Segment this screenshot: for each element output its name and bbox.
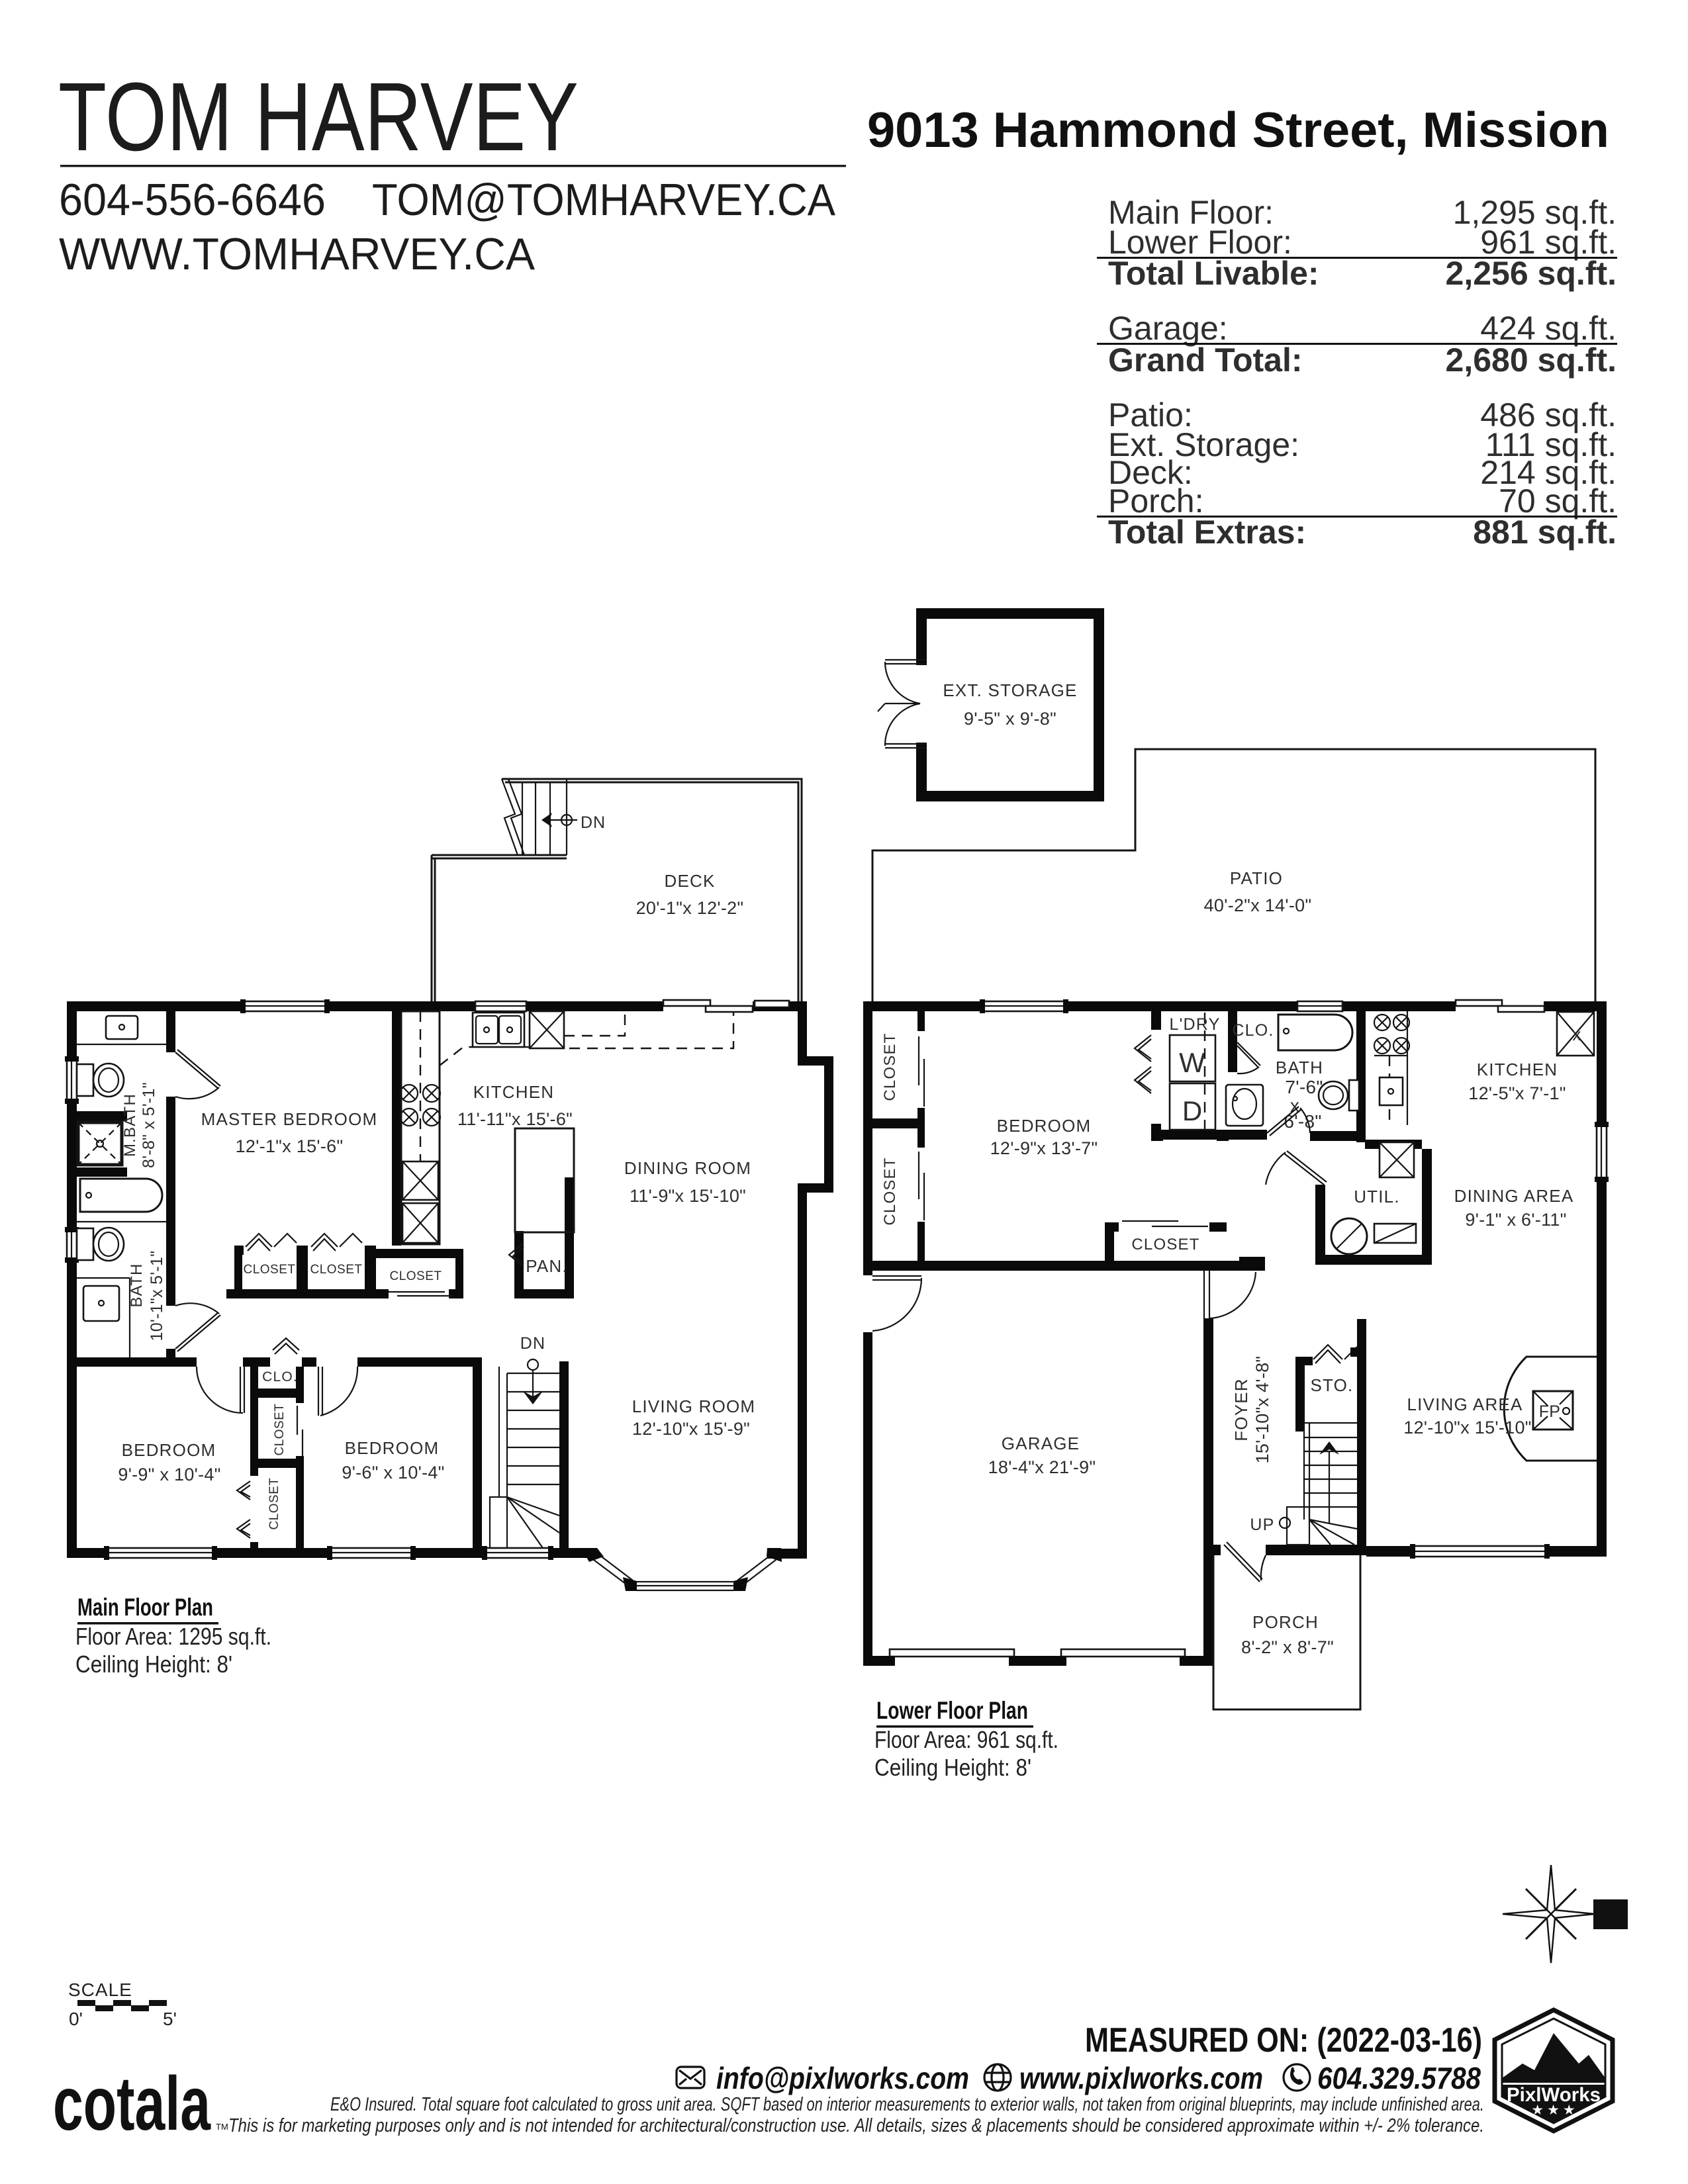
svg-text:TM: TM bbox=[216, 2122, 228, 2132]
svg-text:UTIL.: UTIL. bbox=[1354, 1187, 1400, 1206]
svg-text:CLO.: CLO. bbox=[262, 1369, 298, 1385]
svg-text:7'-6": 7'-6" bbox=[1285, 1077, 1323, 1097]
svg-text:GARAGE: GARAGE bbox=[1002, 1433, 1080, 1453]
svg-text:E&O Insured. Total square foo: E&O Insured. Total square foot calculate… bbox=[330, 2094, 1484, 2115]
svg-text:604.329.5788: 604.329.5788 bbox=[1317, 2061, 1481, 2095]
svg-text:x: x bbox=[1572, 1024, 1581, 1044]
svg-text:604-556-6646: 604-556-6646 bbox=[59, 175, 326, 225]
svg-text:TOM HARVEY: TOM HARVEY bbox=[58, 63, 579, 171]
svg-text:DN: DN bbox=[581, 813, 606, 832]
svg-text:0': 0' bbox=[69, 2009, 83, 2029]
svg-text:8'-8" x 5'-1": 8'-8" x 5'-1" bbox=[140, 1082, 158, 1168]
svg-text:PAN.: PAN. bbox=[526, 1256, 568, 1276]
svg-text:KITCHEN: KITCHEN bbox=[473, 1082, 555, 1102]
svg-text:CLOSET: CLOSET bbox=[1131, 1236, 1199, 1253]
svg-text:MASTER BEDROOM: MASTER BEDROOM bbox=[201, 1109, 378, 1129]
svg-text:BEDROOM: BEDROOM bbox=[345, 1438, 440, 1458]
svg-text:9'-5" x 9'-8": 9'-5" x 9'-8" bbox=[964, 709, 1056, 729]
svg-text:2,256 sq.ft.: 2,256 sq.ft. bbox=[1446, 255, 1617, 292]
svg-text:Main Floor Plan: Main Floor Plan bbox=[77, 1594, 213, 1621]
svg-text:5': 5' bbox=[163, 2009, 177, 2029]
svg-text:FP: FP bbox=[1539, 1402, 1561, 1421]
svg-text:8'-2" x 8'-7": 8'-2" x 8'-7" bbox=[1241, 1637, 1334, 1657]
svg-text:CLO.: CLO. bbox=[1232, 1021, 1274, 1040]
svg-text:DECK: DECK bbox=[664, 871, 715, 891]
svg-text:BATH: BATH bbox=[128, 1263, 146, 1307]
svg-text:DN: DN bbox=[520, 1334, 546, 1353]
svg-text:DINING AREA: DINING AREA bbox=[1454, 1186, 1574, 1206]
svg-text:18'-4"x 21'-9": 18'-4"x 21'-9" bbox=[988, 1457, 1096, 1477]
svg-text:20'-1"x 12'-2": 20'-1"x 12'-2" bbox=[636, 898, 744, 918]
svg-text:BEDROOM: BEDROOM bbox=[122, 1440, 216, 1460]
svg-text:LIVING ROOM: LIVING ROOM bbox=[632, 1396, 756, 1416]
svg-text:Total Extras:: Total Extras: bbox=[1108, 514, 1306, 551]
svg-text:TOM@TOMHARVEY.CA: TOM@TOMHARVEY.CA bbox=[372, 175, 836, 225]
svg-text:881 sq.ft.: 881 sq.ft. bbox=[1473, 514, 1617, 551]
svg-text:9'-9" x 10'-4": 9'-9" x 10'-4" bbox=[118, 1465, 220, 1484]
svg-text:11'-11"x 15'-6": 11'-11"x 15'-6" bbox=[457, 1109, 573, 1129]
svg-text:15'-10"x 4'-8": 15'-10"x 4'-8" bbox=[1252, 1356, 1272, 1464]
svg-text:www.pixlworks.com: www.pixlworks.com bbox=[1019, 2061, 1263, 2095]
svg-text:BEDROOM: BEDROOM bbox=[997, 1116, 1092, 1136]
svg-text:Total Livable:: Total Livable: bbox=[1108, 255, 1319, 292]
svg-text:12'-10"x 15'-9": 12'-10"x 15'-9" bbox=[632, 1419, 750, 1439]
svg-text:Grand Total:: Grand Total: bbox=[1108, 341, 1303, 379]
svg-text:CLOSET: CLOSET bbox=[389, 1269, 442, 1283]
svg-text:FOYER: FOYER bbox=[1231, 1378, 1251, 1441]
svg-text:CLOSET: CLOSET bbox=[881, 1157, 899, 1225]
svg-text:LIVING AREA: LIVING AREA bbox=[1407, 1394, 1523, 1414]
svg-text:12'-1"x 15'-6": 12'-1"x 15'-6" bbox=[236, 1136, 344, 1156]
svg-text:9'-1" x 6'-11": 9'-1" x 6'-11" bbox=[1465, 1210, 1566, 1230]
svg-text:cotala: cotala bbox=[53, 2062, 211, 2146]
svg-text:WWW.TOMHARVEY.CA: WWW.TOMHARVEY.CA bbox=[59, 229, 536, 279]
svg-text:CLOSET: CLOSET bbox=[310, 1263, 362, 1277]
svg-text:Ceiling Height: 8': Ceiling Height: 8' bbox=[75, 1651, 232, 1678]
svg-text:Floor Area: 961 sq.ft.: Floor Area: 961 sq.ft. bbox=[874, 1726, 1058, 1753]
svg-text:W: W bbox=[1179, 1047, 1205, 1078]
svg-text:Ceiling Height: 8': Ceiling Height: 8' bbox=[874, 1754, 1031, 1781]
svg-text:DINING ROOM: DINING ROOM bbox=[624, 1158, 751, 1178]
svg-text:12'-9"x 13'-7": 12'-9"x 13'-7" bbox=[990, 1138, 1098, 1158]
svg-text:12'-5"x 7'-1": 12'-5"x 7'-1" bbox=[1468, 1083, 1566, 1103]
svg-text:CLOSET: CLOSET bbox=[273, 1403, 287, 1455]
svg-text:★★★: ★★★ bbox=[1531, 2103, 1578, 2118]
svg-text:40'-2"x 14'-0": 40'-2"x 14'-0" bbox=[1204, 895, 1312, 915]
svg-text:CLOSET: CLOSET bbox=[243, 1263, 295, 1277]
svg-text:MEASURED ON: (2022-03-16): MEASURED ON: (2022-03-16) bbox=[1085, 2021, 1482, 2060]
svg-text:9'-6" x 10'-4": 9'-6" x 10'-4" bbox=[342, 1463, 444, 1482]
svg-text:info@pixlworks.com: info@pixlworks.com bbox=[716, 2061, 969, 2095]
svg-text:KITCHEN: KITCHEN bbox=[1477, 1060, 1558, 1079]
svg-text:PORCH: PORCH bbox=[1252, 1612, 1319, 1632]
svg-text:PATIO: PATIO bbox=[1230, 868, 1283, 888]
svg-text:Lower Floor Plan: Lower Floor Plan bbox=[876, 1697, 1028, 1724]
svg-text:9013 Hammond Street, Mission: 9013 Hammond Street, Mission bbox=[867, 102, 1609, 158]
svg-text:10'-1"x 5'-1": 10'-1"x 5'-1" bbox=[148, 1251, 166, 1342]
svg-text:BATH: BATH bbox=[1276, 1058, 1323, 1077]
svg-text:SCALE: SCALE bbox=[68, 1979, 132, 2000]
svg-text:This is for marketing purposes: This is for marketing purposes only and … bbox=[228, 2115, 1484, 2136]
svg-text:UP: UP bbox=[1250, 1516, 1274, 1534]
svg-text:STO.: STO. bbox=[1310, 1375, 1353, 1395]
svg-text:CLOSET: CLOSET bbox=[881, 1032, 899, 1101]
svg-text:2,680 sq.ft.: 2,680 sq.ft. bbox=[1446, 341, 1617, 379]
svg-text:11'-9"x 15'-10": 11'-9"x 15'-10" bbox=[630, 1186, 746, 1206]
svg-text:CLOSET: CLOSET bbox=[267, 1477, 281, 1529]
svg-text:L'DRY: L'DRY bbox=[1169, 1015, 1220, 1034]
svg-text:D: D bbox=[1182, 1095, 1202, 1126]
svg-text:12'-10"x 15'-10": 12'-10"x 15'-10" bbox=[1403, 1418, 1531, 1437]
svg-text:EXT. STORAGE: EXT. STORAGE bbox=[943, 680, 1077, 700]
svg-text:Floor Area: 1295 sq.ft.: Floor Area: 1295 sq.ft. bbox=[75, 1623, 271, 1650]
svg-text:M.BATH: M.BATH bbox=[121, 1093, 139, 1157]
